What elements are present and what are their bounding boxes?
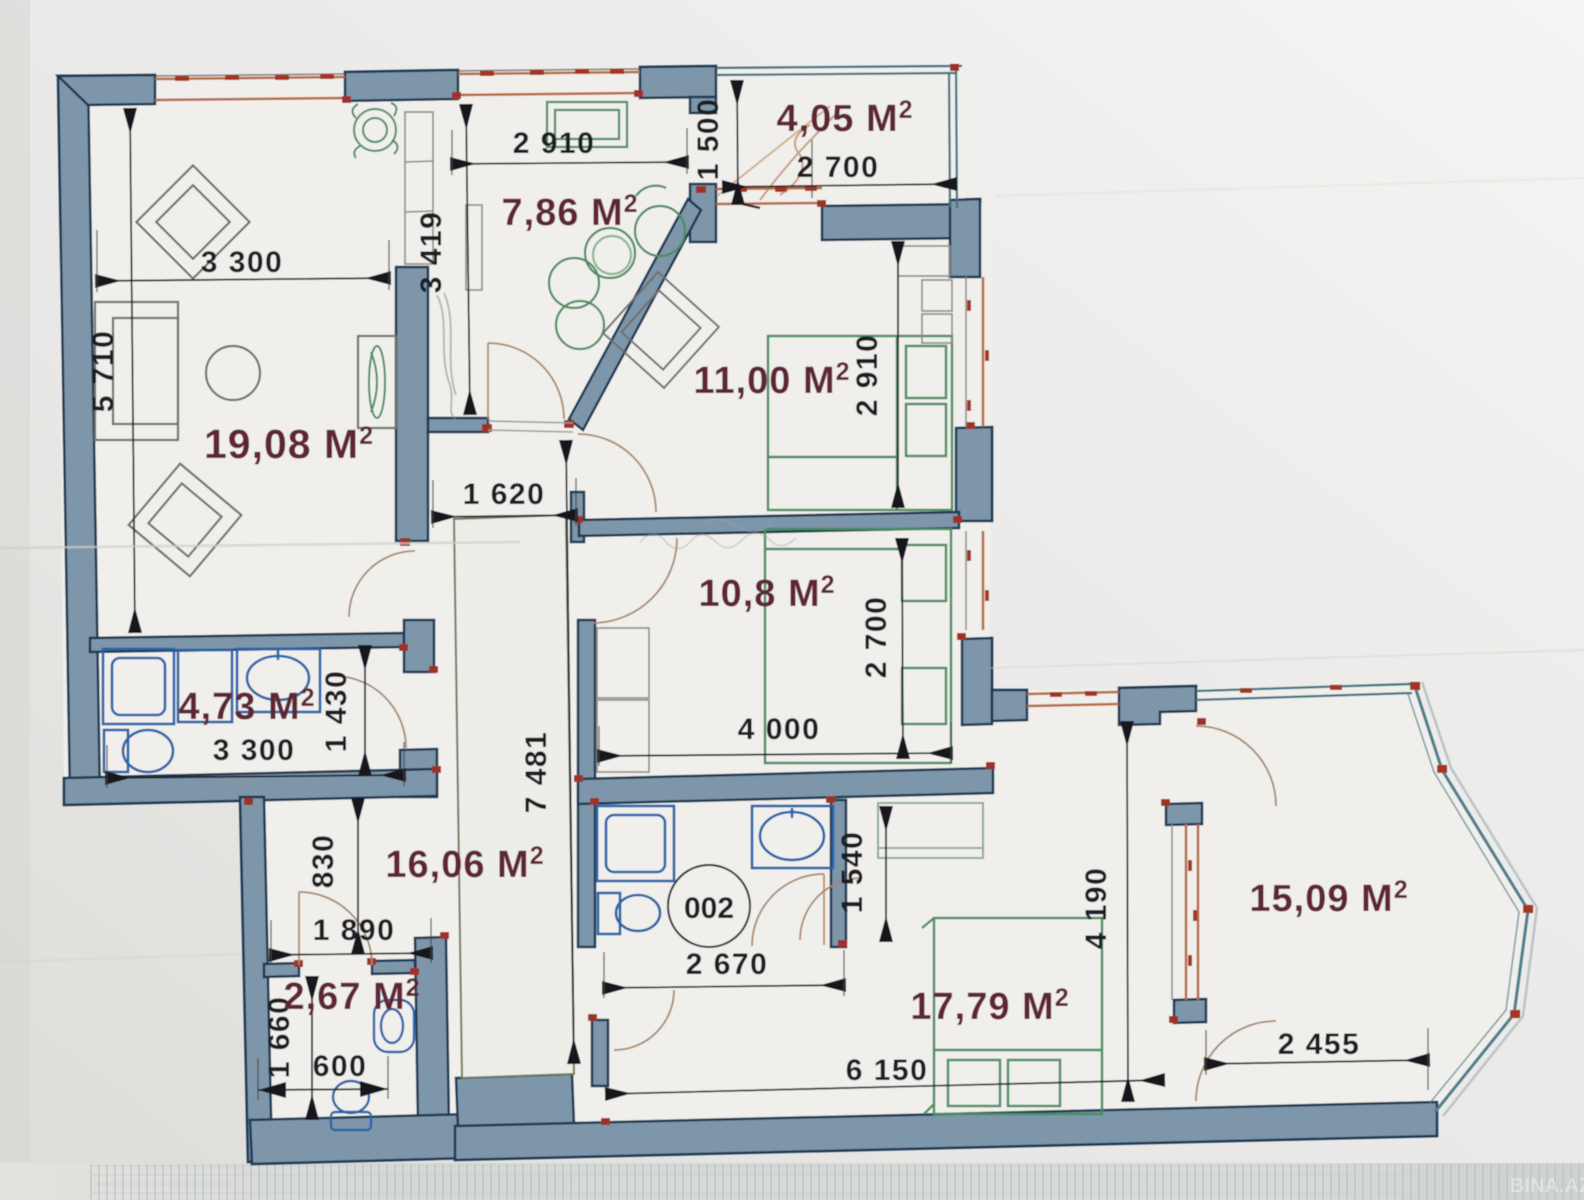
svg-text:2 700: 2 700	[860, 596, 893, 679]
svg-text:11,00 M2: 11,00 M2	[693, 358, 850, 402]
svg-text:10,8 M2: 10,8 M2	[698, 571, 835, 615]
svg-text:6 150: 6 150	[846, 1054, 929, 1087]
svg-text:7,86 M2: 7,86 M2	[501, 190, 638, 234]
svg-text:5 710: 5 710	[87, 330, 120, 413]
svg-text:830: 830	[307, 834, 340, 889]
svg-text:4 000: 4 000	[738, 713, 821, 746]
svg-text:1 430: 1 430	[320, 670, 353, 753]
svg-text:2 700: 2 700	[797, 151, 880, 184]
svg-text:4,73 M2: 4,73 M2	[178, 684, 315, 728]
svg-text:1 620: 1 620	[463, 478, 546, 511]
svg-text:3 419: 3 419	[415, 211, 448, 294]
svg-text:600: 600	[313, 1050, 368, 1083]
svg-text:17,79 M2: 17,79 M2	[910, 984, 1069, 1028]
svg-text:2,67 M2: 2,67 M2	[283, 974, 420, 1018]
svg-text:3 300: 3 300	[201, 246, 284, 279]
svg-text:3 300: 3 300	[213, 734, 296, 767]
svg-text:4,05 M2: 4,05 M2	[776, 96, 913, 140]
svg-text:16,06 M2: 16,06 M2	[385, 842, 544, 886]
svg-text:002: 002	[684, 892, 734, 925]
svg-text:2 910: 2 910	[851, 334, 884, 417]
svg-text:7 481: 7 481	[520, 731, 553, 814]
svg-text:BINA.AZ: BINA.AZ	[1510, 1175, 1584, 1197]
svg-text:2 455: 2 455	[1278, 1028, 1361, 1061]
svg-text:2 910: 2 910	[513, 127, 596, 160]
svg-text:1 890: 1 890	[313, 914, 396, 947]
svg-text:4 190: 4 190	[1080, 867, 1113, 950]
svg-text:1 500: 1 500	[692, 98, 725, 181]
svg-text:1 540: 1 540	[836, 831, 869, 914]
svg-text:19,08 M2: 19,08 M2	[204, 421, 374, 467]
svg-text:15,09 M2: 15,09 M2	[1249, 876, 1408, 920]
svg-text:2 670: 2 670	[686, 948, 769, 981]
